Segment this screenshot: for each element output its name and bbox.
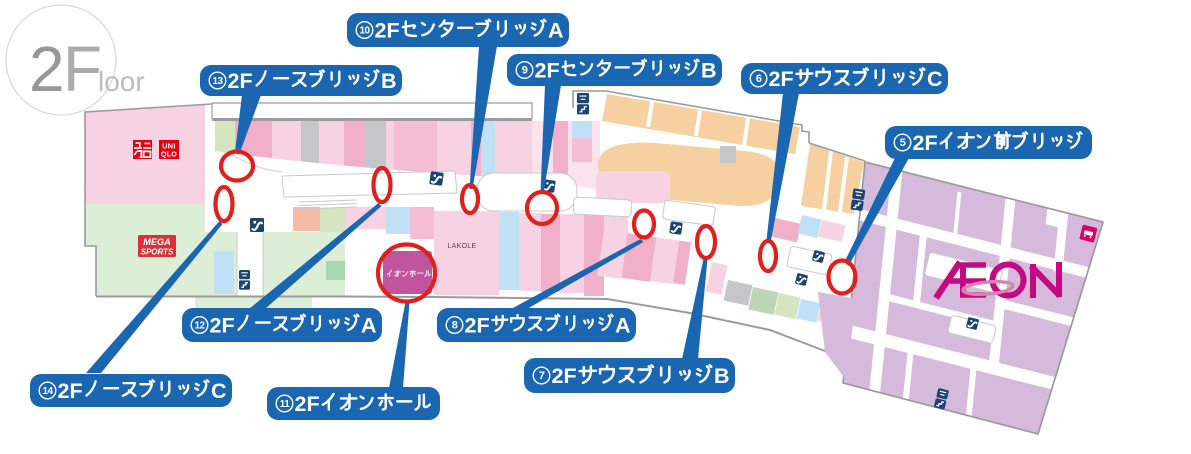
svg-text:2F: 2F <box>210 314 235 338</box>
svg-text:13: 13 <box>212 76 223 87</box>
svg-text:2F: 2F <box>913 131 938 155</box>
svg-text:SPORTS: SPORTS <box>141 247 174 256</box>
svg-text:12: 12 <box>194 321 205 332</box>
svg-text:B: B <box>381 69 397 93</box>
svg-text:11: 11 <box>280 399 291 410</box>
svg-text:QLO: QLO <box>161 150 177 159</box>
svg-text:9: 9 <box>522 65 528 77</box>
svg-text:LAKOLE: LAKOLE <box>447 243 476 250</box>
svg-text:2F: 2F <box>535 59 560 83</box>
svg-text:C: C <box>211 379 227 403</box>
svg-text:MEGA: MEGA <box>143 237 171 247</box>
svg-text:10: 10 <box>359 26 370 37</box>
svg-text:2: 2 <box>29 33 65 105</box>
svg-text:2F: 2F <box>552 364 577 388</box>
svg-text:loor: loor <box>98 66 145 97</box>
svg-text:8: 8 <box>452 320 458 332</box>
svg-text:2F: 2F <box>228 69 253 93</box>
svg-text:2F: 2F <box>375 19 400 43</box>
svg-text:C: C <box>927 67 943 91</box>
svg-text:6: 6 <box>756 73 762 85</box>
svg-text:7: 7 <box>539 370 545 382</box>
svg-text:2F: 2F <box>769 67 794 91</box>
svg-text:A: A <box>361 314 377 338</box>
svg-text:2F: 2F <box>465 314 490 338</box>
svg-text:2F: 2F <box>58 379 83 403</box>
svg-text:14: 14 <box>42 386 53 397</box>
svg-text:2F: 2F <box>295 392 320 416</box>
svg-text:B: B <box>701 59 717 83</box>
svg-text:A: A <box>615 314 631 338</box>
svg-text:F: F <box>63 33 102 105</box>
svg-text:A: A <box>548 19 564 43</box>
svg-text:5: 5 <box>900 137 906 149</box>
svg-text:B: B <box>714 364 730 388</box>
